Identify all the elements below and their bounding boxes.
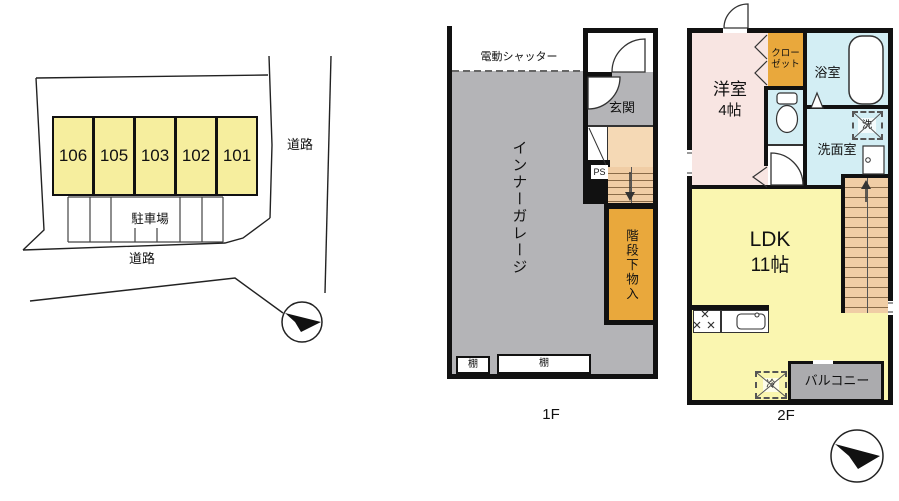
stairs-1f	[608, 167, 653, 203]
bathroom-label: 浴室	[800, 65, 855, 81]
door-gap	[723, 28, 747, 33]
north-compass-icon	[831, 430, 883, 482]
floor-label-2f: 2F	[771, 407, 801, 425]
unit-box: 105	[93, 116, 135, 196]
shelf-label: 棚	[497, 355, 591, 373]
stove-icon	[720, 310, 722, 333]
wall	[447, 26, 452, 379]
hall-2f	[768, 147, 803, 185]
wall	[604, 320, 658, 325]
washer-label: 洗	[858, 118, 876, 133]
unit-label: 103	[141, 146, 169, 166]
balcony-door-gap	[813, 360, 833, 364]
unit-box: 102	[175, 116, 217, 196]
wall	[687, 400, 893, 405]
wall	[687, 185, 845, 189]
wall	[687, 28, 893, 33]
wall	[447, 374, 658, 379]
ldk-size-label: 11帖	[700, 255, 840, 277]
ps-label: PS	[589, 164, 610, 180]
wall	[583, 28, 658, 33]
kitchen-counter	[693, 310, 769, 333]
window-gap	[888, 301, 893, 315]
window-gap	[687, 150, 692, 176]
unit-box: 103	[134, 116, 176, 196]
entrance-porch	[588, 33, 653, 72]
north-compass-icon	[282, 302, 322, 342]
wall	[768, 144, 803, 146]
floor-label-1f: 1F	[536, 406, 566, 424]
wall	[583, 33, 588, 72]
wall	[653, 28, 658, 379]
unit-label: 105	[100, 146, 128, 166]
shutter-label: 電動シャッター	[466, 50, 572, 64]
road-label-right: 道路	[283, 137, 317, 153]
wall	[841, 174, 845, 313]
unit-label: 101	[223, 146, 251, 166]
room-door-arc-icon	[724, 4, 748, 28]
wall	[583, 77, 588, 203]
wall	[841, 174, 893, 178]
unit-box: 106	[52, 116, 94, 196]
washroom-label: 洗面室	[806, 142, 868, 158]
entrance-label: 玄関	[605, 100, 639, 116]
stairs-2f	[845, 178, 888, 313]
unit-label: 102	[182, 146, 210, 166]
shelf-label: 棚	[456, 357, 490, 373]
floor-plan-page: 106 105 103 102 101 駐車場 道路 道路 PS 階段下物入	[0, 0, 899, 501]
unit-box: 101	[216, 116, 258, 196]
western-room-label: 洋室	[692, 80, 768, 100]
wall	[807, 105, 888, 109]
wall	[588, 125, 653, 127]
wall	[888, 28, 893, 405]
unit-label: 106	[59, 146, 87, 166]
under-stair-storage-label: 階段下物入	[618, 216, 644, 314]
balcony-label: バルコニー	[793, 373, 881, 389]
parking-label: 駐車場	[122, 211, 178, 227]
ldk-label: LDK	[700, 228, 840, 252]
western-room-size-label: 4帖	[692, 102, 768, 120]
wall	[764, 86, 807, 90]
toilet-room	[768, 90, 803, 144]
refrigerator-label: 冷	[763, 378, 779, 392]
hall-1f	[608, 127, 653, 167]
wall	[604, 209, 609, 320]
road-label-bottom: 道路	[125, 251, 159, 267]
garage-label: インナーガレージ	[504, 112, 532, 304]
